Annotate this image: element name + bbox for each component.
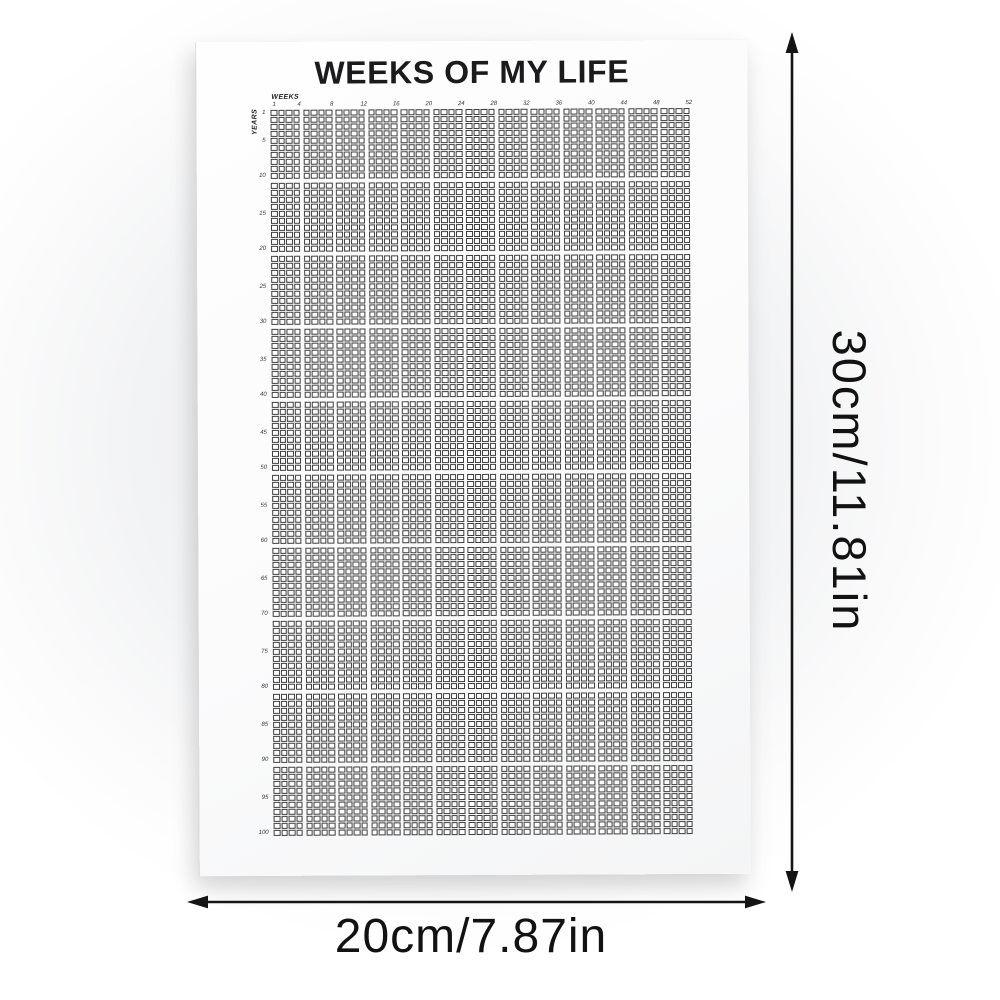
week-cell [271, 319, 278, 325]
week-block [531, 158, 560, 164]
week-block [368, 196, 397, 202]
week-cell [481, 297, 488, 303]
week-cell [580, 568, 587, 574]
week-cell [489, 377, 496, 383]
week-block [661, 261, 690, 267]
week-block [564, 334, 593, 340]
week-cell [515, 589, 522, 595]
week-cell [457, 363, 464, 369]
week-cell [328, 642, 335, 648]
week-cell [409, 238, 416, 244]
week-cell [668, 209, 675, 215]
week-cell [489, 255, 496, 261]
week-cell [403, 596, 410, 602]
week-cell [563, 158, 570, 164]
week-cell [294, 437, 301, 443]
week-cell [669, 355, 676, 361]
week-cell [521, 151, 528, 157]
week-cell [392, 349, 399, 355]
week-block [305, 597, 334, 603]
week-cell [279, 458, 286, 464]
week-cell [670, 619, 677, 625]
week-block [564, 282, 593, 288]
week-cell [515, 495, 522, 501]
week-cell [669, 341, 676, 347]
week-block [532, 349, 561, 355]
week-cell [272, 569, 279, 575]
week-cell [312, 364, 319, 370]
week-cell [352, 378, 359, 384]
week-cell [652, 522, 659, 528]
week-cell [272, 371, 279, 377]
week-block [337, 568, 366, 574]
week-cell [619, 317, 626, 323]
week-cell [490, 582, 497, 588]
week-cell [377, 436, 384, 442]
week-cell [587, 362, 594, 368]
week-cell [514, 297, 521, 303]
week-cell [295, 611, 302, 617]
week-block [629, 289, 658, 295]
week-cell [596, 216, 603, 222]
week-block [597, 383, 626, 389]
week-cell [467, 554, 474, 560]
week-cell [571, 158, 578, 164]
week-block [597, 414, 626, 420]
week-cell [320, 635, 327, 641]
week-block [369, 231, 398, 237]
week-block [595, 108, 624, 114]
week-cell [456, 304, 463, 310]
week-cell [450, 641, 457, 647]
week-cell [311, 117, 318, 123]
week-cell [481, 151, 488, 157]
week-cell [416, 269, 423, 275]
week-cell [424, 349, 431, 355]
week-cell [416, 238, 423, 244]
week-cell [434, 401, 441, 407]
week-cell [403, 627, 410, 633]
week-cell [370, 530, 377, 536]
week-cell [644, 230, 651, 236]
week-cell [287, 465, 294, 471]
week-block [402, 509, 431, 515]
week-cell [507, 408, 514, 414]
week-cell [384, 297, 391, 303]
week-cell [554, 290, 561, 296]
week-cell [555, 648, 562, 654]
week-block [369, 262, 398, 268]
week-cell [507, 429, 514, 435]
week-block [368, 210, 397, 216]
week-cell [498, 224, 505, 230]
week-cell [506, 262, 513, 268]
week-cell [508, 596, 515, 602]
week-cell [409, 370, 416, 376]
week-cell [533, 610, 540, 616]
week-cell [271, 246, 278, 252]
week-block [401, 217, 430, 223]
week-cell [645, 508, 652, 514]
week-cell [402, 464, 409, 470]
week-cell [580, 502, 587, 508]
week-cell [304, 256, 311, 262]
week-block [662, 567, 691, 573]
week-cell [481, 255, 488, 261]
week-cell [294, 336, 301, 342]
week-cell [482, 377, 489, 383]
week-block [468, 596, 497, 602]
week-cell [540, 641, 547, 647]
week-cell [572, 488, 579, 494]
week-cell [670, 640, 677, 646]
week-cell [506, 269, 513, 275]
week-cell [416, 196, 423, 202]
week-cell [651, 244, 658, 250]
week-block [401, 238, 430, 244]
week-cell [343, 218, 350, 224]
week-cell [482, 554, 489, 560]
week-cell [628, 129, 635, 135]
week-cell [345, 562, 352, 568]
week-cell [579, 276, 586, 282]
week-cell [653, 574, 660, 580]
week-cell [337, 555, 344, 561]
week-cell [546, 172, 553, 178]
week-cell [652, 553, 659, 559]
week-cell [287, 569, 294, 575]
week-cell [490, 554, 497, 560]
week-cell [555, 481, 562, 487]
week-cell [531, 342, 538, 348]
week-cell [393, 582, 400, 588]
week-cell [351, 246, 358, 252]
week-cell [369, 255, 376, 261]
week-cell [571, 182, 578, 188]
week-cell [403, 641, 410, 647]
week-cell [360, 516, 367, 522]
week-block [596, 282, 625, 288]
week-block [304, 451, 333, 457]
week-cell [482, 443, 489, 449]
week-cell [619, 282, 626, 288]
week-cell [443, 634, 450, 640]
week-cell [670, 602, 677, 608]
week-block [563, 209, 592, 215]
week-cell [546, 290, 553, 296]
week-cell [514, 408, 521, 414]
week-cell [661, 289, 668, 295]
week-block [628, 171, 657, 177]
week-cell [612, 390, 619, 396]
week-cell [598, 574, 605, 580]
week-cell [336, 277, 343, 283]
week-cell [280, 517, 287, 523]
week-block [305, 548, 334, 554]
week-cell [540, 575, 547, 581]
week-cell [506, 276, 513, 282]
week-cell [500, 634, 507, 640]
week-block [531, 144, 560, 150]
week-cell [604, 254, 611, 260]
week-cell [456, 297, 463, 303]
week-cell [603, 195, 610, 201]
week-block [305, 503, 334, 509]
week-cell [385, 627, 392, 633]
week-cell [643, 202, 650, 208]
week-block [434, 450, 463, 456]
week-block [467, 547, 496, 553]
week-block [305, 621, 334, 627]
week-cell [547, 450, 554, 456]
week-cell [343, 159, 350, 165]
week-block [663, 602, 692, 608]
week-cell [612, 428, 619, 434]
week-block [531, 123, 560, 129]
week-block [663, 609, 692, 615]
week-cell [383, 172, 390, 178]
week-cell [311, 225, 318, 231]
week-cell [294, 343, 301, 349]
week-cell [345, 548, 352, 554]
week-cell [538, 196, 545, 202]
week-block [336, 335, 365, 341]
week-cell [636, 195, 643, 201]
week-cell [391, 158, 398, 164]
week-cell [522, 401, 529, 407]
week-cell [619, 254, 626, 260]
week-cell [515, 509, 522, 515]
week-cell [383, 151, 390, 157]
week-block [499, 363, 528, 369]
week-cell [450, 547, 457, 553]
week-block [467, 516, 496, 522]
week-cell [457, 349, 464, 355]
week-cell [295, 576, 302, 582]
week-block [304, 350, 333, 356]
week-block [271, 319, 300, 325]
week-cell [456, 210, 463, 216]
week-block [597, 456, 626, 462]
week-cell [555, 537, 562, 543]
week-cell [320, 628, 327, 634]
week-cell [279, 329, 286, 335]
week-cell [546, 269, 553, 275]
week-block [661, 317, 690, 323]
week-cell [434, 384, 441, 390]
week-cell [402, 377, 409, 383]
week-block [402, 537, 431, 543]
week-block [531, 304, 560, 310]
week-block [271, 190, 300, 196]
week-block [433, 165, 462, 171]
week-cell [662, 536, 669, 542]
week-cell [457, 516, 464, 522]
week-cell [377, 422, 384, 428]
week-cell [320, 475, 327, 481]
week-cell [500, 495, 507, 501]
week-cell [468, 596, 475, 602]
weeks-grid [270, 108, 692, 830]
week-cell [554, 457, 561, 463]
week-block [271, 336, 300, 342]
week-cell [670, 536, 677, 542]
week-cell [467, 377, 474, 383]
week-cell [295, 649, 302, 655]
week-cell [522, 391, 529, 397]
week-cell [668, 150, 675, 156]
week-cell [547, 495, 554, 501]
week-cell [586, 317, 593, 323]
week-block [662, 456, 691, 462]
week-cell [481, 203, 488, 209]
week-cell [377, 568, 384, 574]
week-block [532, 429, 561, 435]
week-cell [629, 341, 636, 347]
week-cell [359, 377, 366, 383]
week-cell [661, 261, 668, 267]
week-cell [663, 588, 670, 594]
week-cell [311, 343, 318, 349]
week-cell [344, 246, 351, 252]
week-cell [540, 481, 547, 487]
week-cell [637, 480, 644, 486]
week-block [337, 537, 366, 543]
week-cell [604, 362, 611, 368]
week-cell [311, 329, 318, 335]
week-cell [645, 602, 652, 608]
week-cell [360, 561, 367, 567]
week-cell [433, 217, 440, 223]
week-cell [597, 487, 604, 493]
week-cell [506, 224, 513, 230]
week-cell [423, 217, 430, 223]
week-block [271, 298, 300, 304]
week-block [466, 224, 495, 230]
week-cell [359, 457, 366, 463]
week-cell [468, 634, 475, 640]
week-block [597, 376, 626, 382]
week-cell [515, 648, 522, 654]
week-cell [383, 182, 390, 188]
week-cell [433, 123, 440, 129]
week-cell [684, 244, 691, 250]
week-block [369, 443, 398, 449]
week-cell [514, 457, 521, 463]
week-block [467, 415, 496, 421]
week-cell [645, 463, 652, 469]
week-cell [467, 474, 474, 480]
week-cell [605, 536, 612, 542]
week-cell [318, 145, 325, 151]
week-cell [523, 627, 530, 633]
week-cell [578, 172, 585, 178]
week-cell [376, 245, 383, 251]
week-cell [629, 435, 636, 441]
week-cell [571, 130, 578, 136]
week-block [468, 603, 497, 609]
week-cell [294, 385, 301, 391]
week-cell [352, 548, 359, 554]
week-cell [458, 582, 465, 588]
week-block [662, 463, 691, 469]
week-cell [313, 649, 320, 655]
week-cell [293, 110, 300, 116]
week-cell [651, 317, 658, 323]
week-cell [578, 116, 585, 122]
week-cell [425, 474, 432, 480]
week-block [370, 648, 399, 654]
week-cell [409, 255, 416, 261]
week-cell [611, 129, 618, 135]
week-cell [402, 516, 409, 522]
week-cell [344, 232, 351, 238]
week-block [434, 269, 463, 275]
week-cell [579, 391, 586, 397]
week-block [369, 238, 398, 244]
week-cell [532, 429, 539, 435]
week-cell [578, 203, 585, 209]
week-cell [402, 349, 409, 355]
week-cell [500, 488, 507, 494]
week-block [369, 245, 398, 251]
year-tick: 55 [261, 503, 268, 509]
week-cell [500, 481, 507, 487]
week-cell [644, 362, 651, 368]
week-cell [630, 463, 637, 469]
week-cell [564, 436, 571, 442]
week-cell [417, 384, 424, 390]
week-cell [547, 408, 554, 414]
week-block [661, 289, 690, 295]
week-cell [442, 436, 449, 442]
week-cell [514, 276, 521, 282]
week-cell [482, 384, 489, 390]
week-cell [598, 595, 605, 601]
week-block [597, 553, 626, 559]
week-cell [344, 263, 351, 269]
week-cell [564, 408, 571, 414]
week-block [563, 136, 592, 142]
week-cell [684, 334, 691, 340]
week-cell [565, 547, 572, 553]
week-cell [522, 363, 529, 369]
week-cell [661, 171, 668, 177]
week-cell [475, 620, 482, 626]
week-cell [532, 516, 539, 522]
grid-row-block [271, 254, 690, 326]
week-cell [586, 223, 593, 229]
week-cell [571, 335, 578, 341]
week-cell [586, 268, 593, 274]
week-cell [304, 239, 311, 245]
week-cell [638, 581, 645, 587]
week-cell [425, 523, 432, 529]
week-cell [546, 276, 553, 282]
week-cell [482, 370, 489, 376]
week-cell [410, 488, 417, 494]
week-cell [457, 370, 464, 376]
week-cell [295, 555, 302, 561]
week-block [305, 517, 334, 523]
week-cell [488, 151, 495, 157]
week-cell [443, 575, 450, 581]
week-cell [338, 621, 345, 627]
week-cell [337, 385, 344, 391]
week-cell [506, 196, 513, 202]
week-block [337, 377, 366, 383]
week-cell [637, 456, 644, 462]
